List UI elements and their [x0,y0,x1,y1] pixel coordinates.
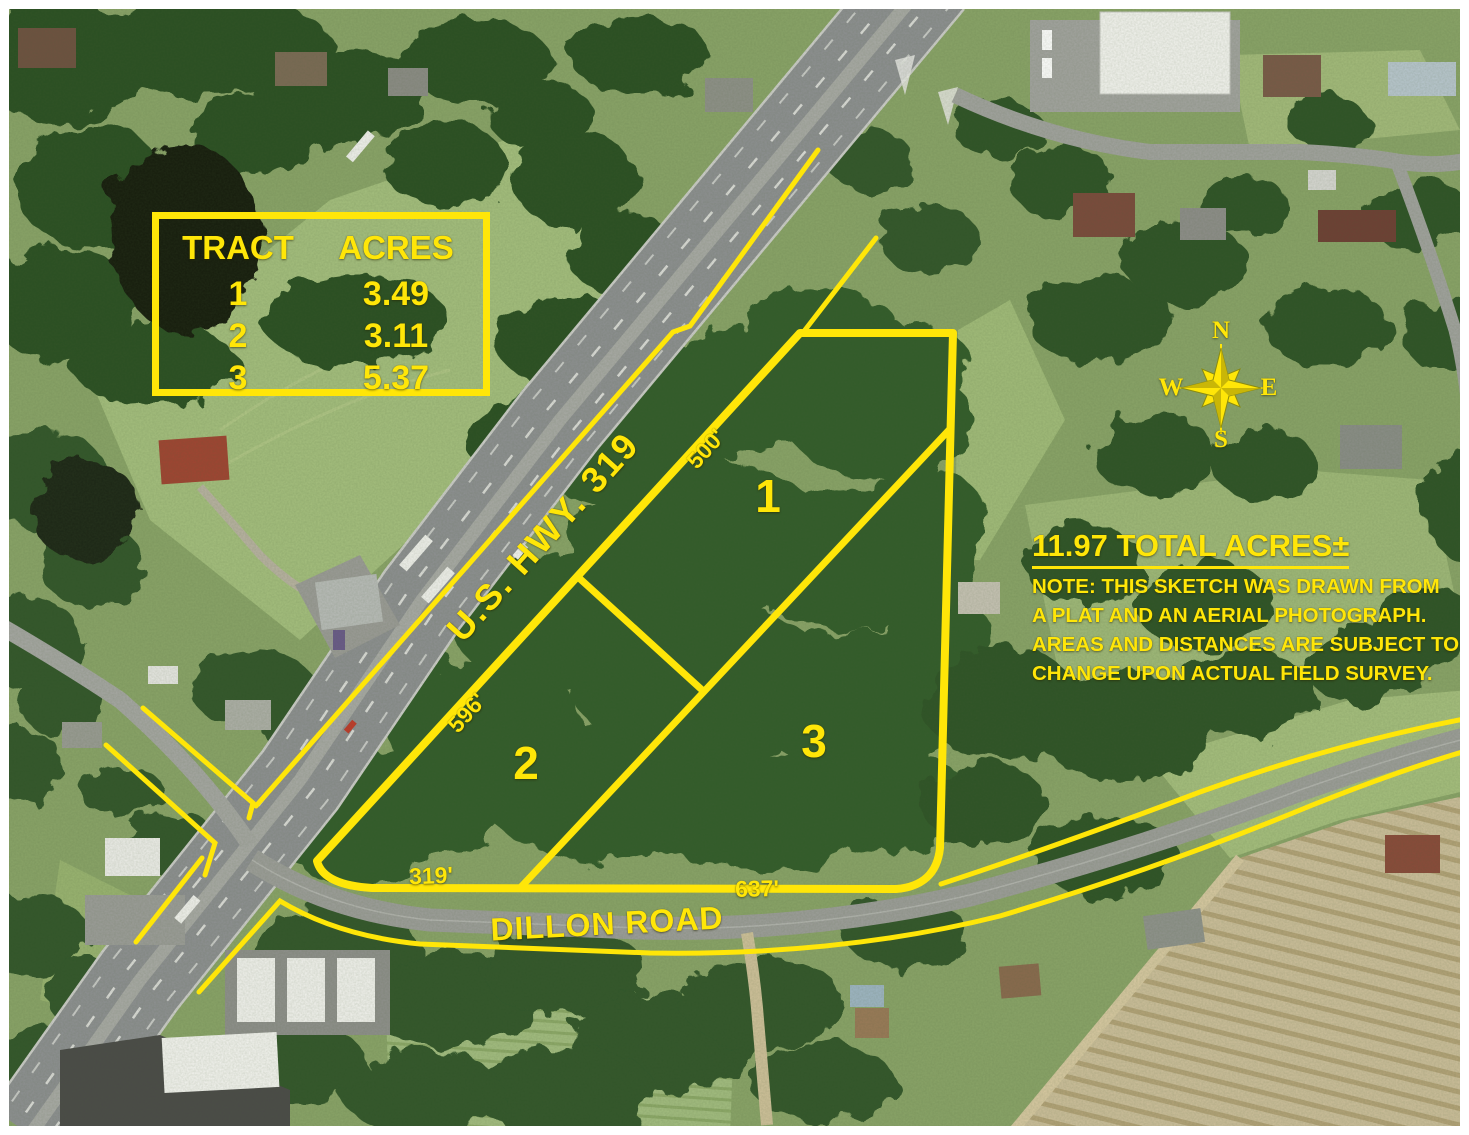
survey-note: NOTE: THIS SKETCH WAS DRAWN FROM A PLAT … [1032,572,1459,688]
tract-marker-1: 1 [755,469,781,523]
survey-note-line: A PLAT AND AN AERIAL PHOTOGRAPH. [1032,601,1459,630]
table-cell-acres: 3.49 [313,277,479,311]
tract-marker-2: 2 [513,736,539,790]
survey-note-line: AREAS AND DISTANCES ARE SUBJECT TO [1032,630,1459,659]
distance-label-319: 319' [409,862,454,891]
table-header-tract: TRACT [163,231,313,264]
survey-note-line: CHANGE UPON ACTUAL FIELD SURVEY. [1032,659,1459,688]
tract-acreage-table: TRACT ACRES 1 3.49 2 3.11 3 5.37 [152,212,490,396]
table-cell-tract: 2 [163,319,313,353]
table-header-acres: ACRES [313,231,479,264]
compass-letter-north: N [1212,317,1230,345]
total-acres-heading: 11.97 TOTAL ACRES± [1032,528,1349,569]
survey-note-line: NOTE: THIS SKETCH WAS DRAWN FROM [1032,572,1459,601]
table-cell-tract: 3 [163,361,313,395]
aerial-survey-sketch: TRACT ACRES 1 3.49 2 3.11 3 5.37 11.97 T… [0,0,1469,1135]
compass-letter-west: W [1159,374,1184,402]
distance-label-637: 637' [735,875,779,903]
tract-marker-3: 3 [801,714,827,768]
table-cell-acres: 5.37 [313,361,479,395]
table-cell-acres: 3.11 [313,319,479,353]
table-cell-tract: 1 [163,277,313,311]
compass-letter-east: E [1261,374,1278,402]
compass-letter-south: S [1214,426,1228,454]
